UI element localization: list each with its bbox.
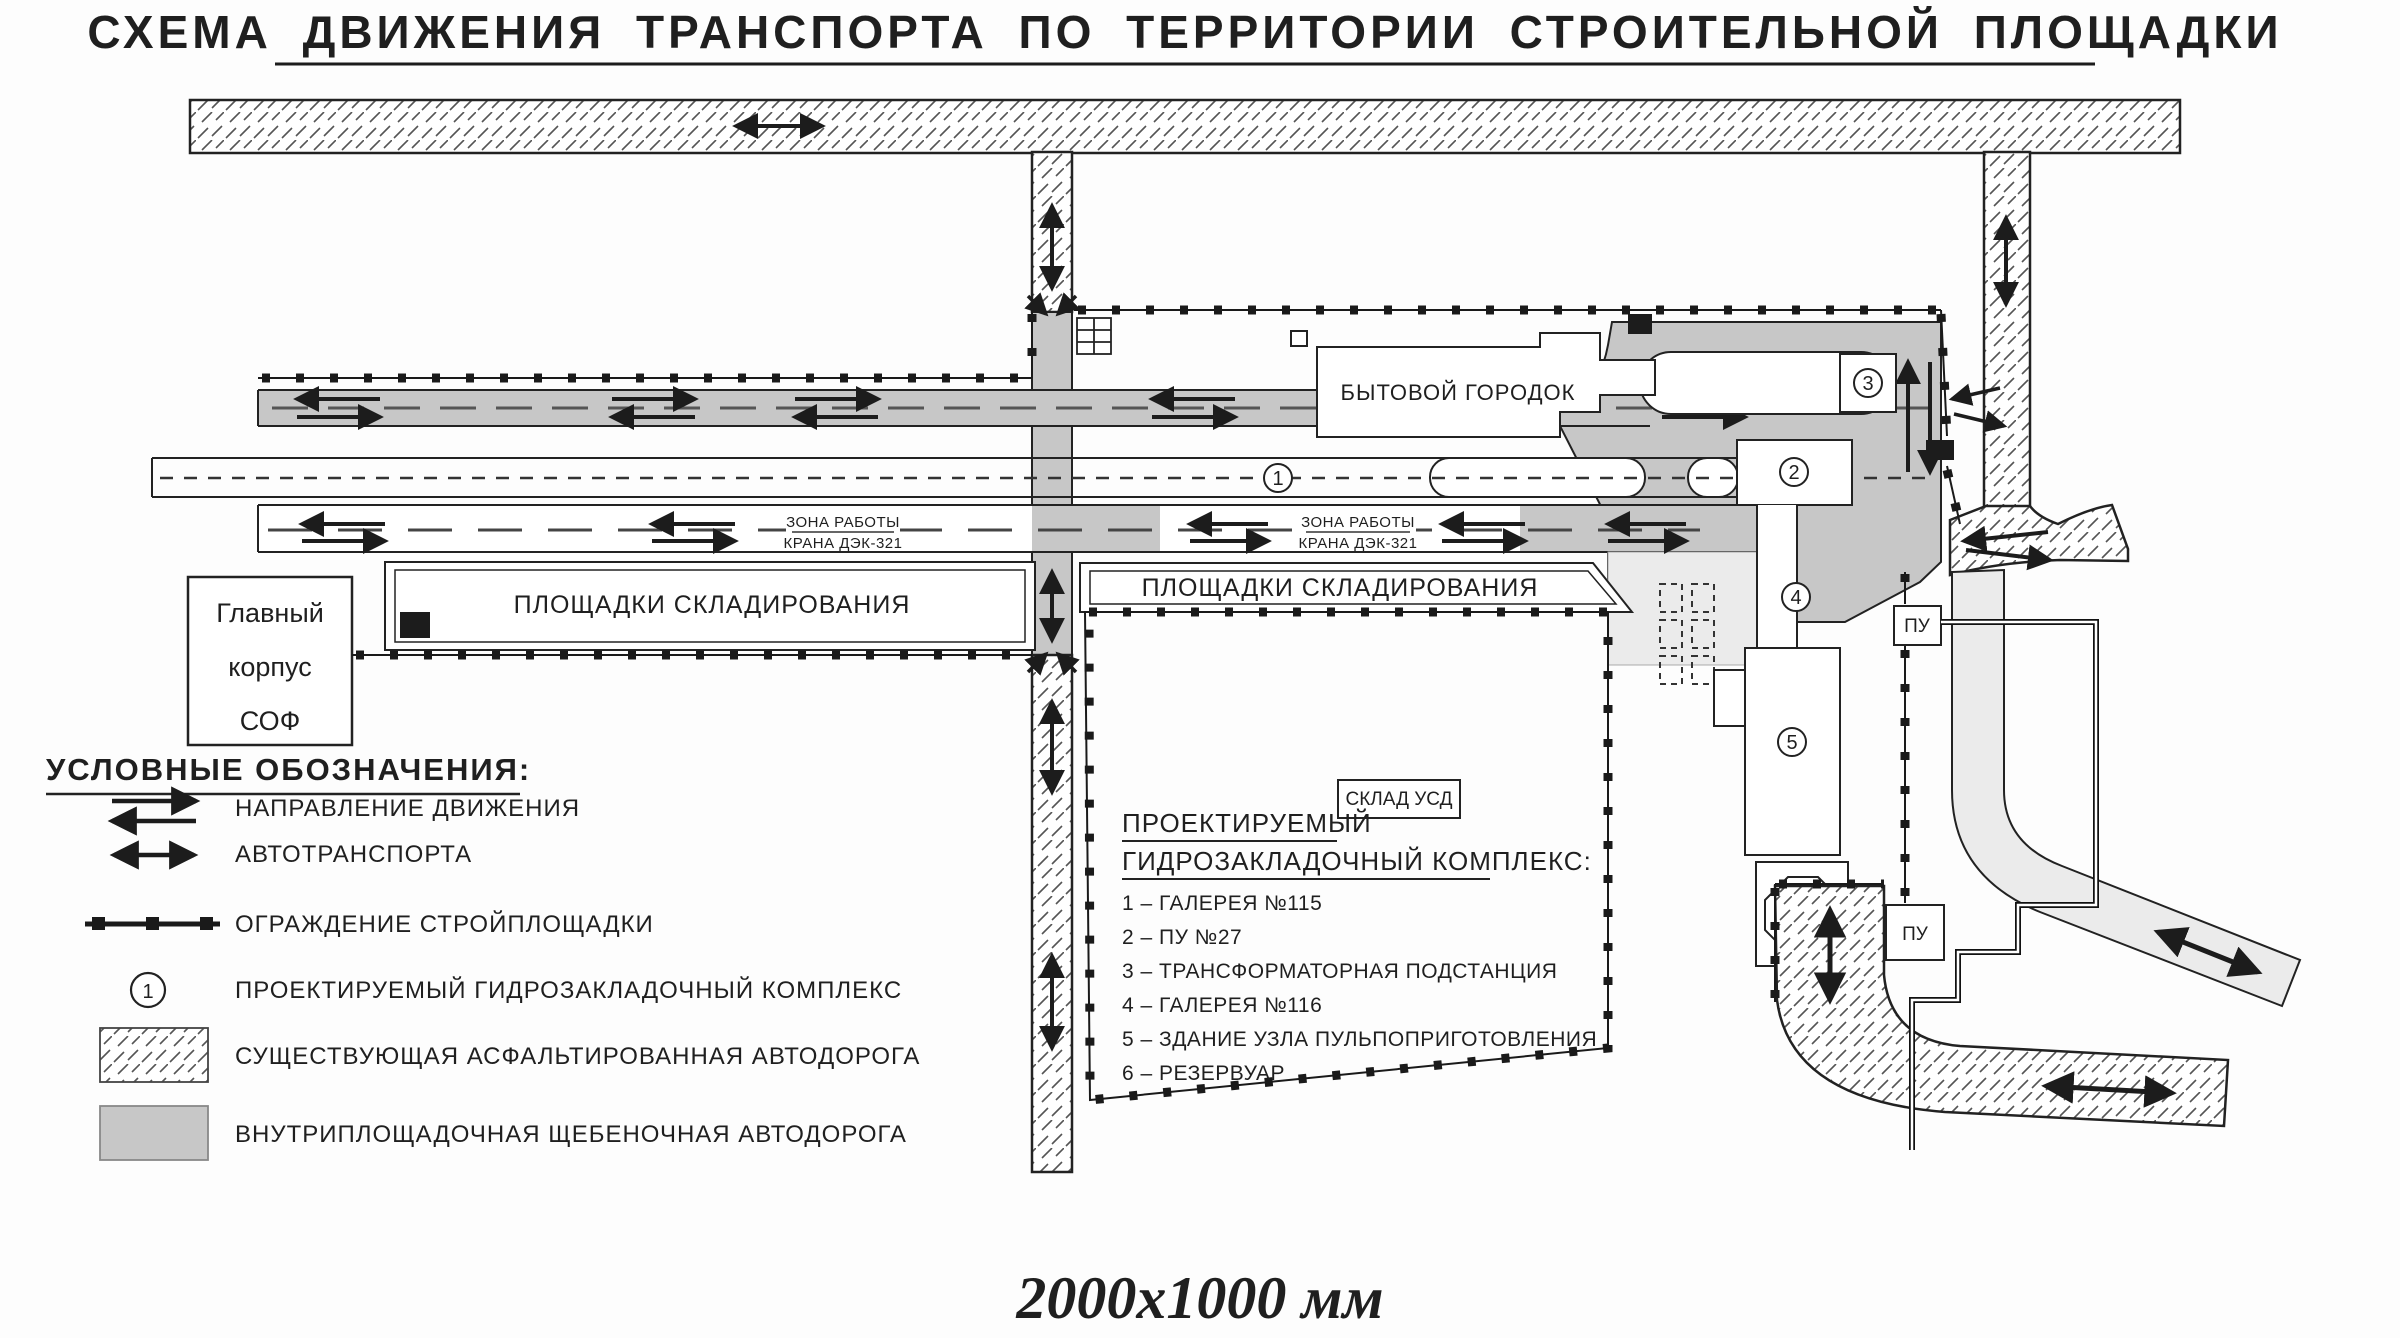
crane-zone-1-line2: КРАНА ДЭК-321 bbox=[784, 535, 903, 552]
sheet-size-caption: 2000x1000 мм bbox=[1015, 1265, 1383, 1331]
complex-item-2: 2 – ПУ №27 bbox=[1122, 926, 1242, 949]
asphalt-swatch bbox=[100, 1028, 208, 1082]
marker-4: 4 bbox=[1790, 587, 1801, 609]
crane-zone-2-line1: ЗОНА РАБОТЫ bbox=[1301, 514, 1415, 531]
legend-complex: ПРОЕКТИРУЕМЫЙ ГИДРОЗАКЛАДОЧНЫЙ КОМПЛЕКС bbox=[235, 976, 902, 1004]
storage-area-2-label: ПЛОЩАДКИ СКЛАДИРОВАНИЯ bbox=[1142, 574, 1539, 602]
asphalt-road-vertical-lower bbox=[1032, 655, 1072, 1172]
legend-direction-1: НАПРАВЛЕНИЕ ДВИЖЕНИЯ bbox=[235, 795, 580, 822]
gallery-115-marker: 1 bbox=[1264, 464, 1292, 492]
storage-area-1: ПЛОЩАДКИ СКЛАДИРОВАНИЯ bbox=[385, 562, 1035, 650]
transformer-island: 3 bbox=[1640, 352, 1896, 414]
camp-label: БЫТОВОЙ ГОРОДОК bbox=[1341, 380, 1576, 405]
small-structure bbox=[1291, 331, 1307, 346]
designed-complex-list: ПРОЕКТИРУЕМЫЙ ГИДРОЗАКЛАДОЧНЫЙ КОМПЛЕКС:… bbox=[1122, 808, 1597, 1085]
marker-5: 5 bbox=[1786, 732, 1797, 754]
complex-list-heading-1: ПРОЕКТИРУЕМЫЙ bbox=[1122, 808, 1372, 838]
legend-asphalt: СУЩЕСТВУЮЩАЯ АСФАЛЬТИРОВАННАЯ АВТОДОРОГА bbox=[235, 1043, 920, 1070]
crane-zone-1-line1: ЗОНА РАБОТЫ bbox=[786, 514, 900, 531]
pu-box-2: ПУ bbox=[1886, 905, 1944, 960]
complex-item-3: 3 – ТРАНСФОРМАТОРНАЯ ПОДСТАНЦИЯ bbox=[1122, 960, 1557, 983]
pu-box-2-label: ПУ bbox=[1902, 924, 1929, 945]
asphalt-road-vertical-central bbox=[1032, 152, 1072, 312]
complex-item-5: 5 – ЗДАНИЕ УЗЛА ПУЛЬПОПРИГОТОВЛЕНИЯ bbox=[1122, 1028, 1597, 1051]
legend-heading: УСЛОВНЫЕ ОБОЗНАЧЕНИЯ: bbox=[46, 752, 531, 787]
site-plan-page: ЗОНА РАБОТЫ КРАНА ДЭК-321 ЗОНА РАБОТЫ КР… bbox=[0, 0, 2400, 1338]
direction-arrows-icon bbox=[112, 801, 196, 855]
crane-zone-2-line2: КРАНА ДЭК-321 bbox=[1299, 535, 1418, 552]
light-exit-road bbox=[1952, 570, 2300, 1006]
main-building: Главный корпус СОФ bbox=[188, 577, 352, 745]
pu-box-1-label: ПУ bbox=[1904, 616, 1931, 637]
main-building-line3: СОФ bbox=[240, 706, 300, 736]
crane-zone-label-2: ЗОНА РАБОТЫ КРАНА ДЭК-321 bbox=[1299, 509, 1418, 552]
asphalt-road-top bbox=[190, 100, 2180, 153]
legend-gravel: ВНУТРИПЛОЩАДОЧНАЯ ЩЕБЕНОЧНАЯ АВТОДОРОГА bbox=[235, 1121, 907, 1148]
cabin-grid-icon bbox=[1077, 318, 1111, 354]
main-building-line1: Главный bbox=[216, 598, 324, 628]
marker-1: 1 bbox=[1272, 468, 1283, 490]
fence-icon bbox=[85, 917, 220, 930]
complex-item-4: 4 – ГАЛЕРЕЯ №116 bbox=[1122, 994, 1322, 1017]
pu-box-1: ПУ bbox=[1894, 606, 1941, 645]
complex-list-heading-2: ГИДРОЗАКЛАДОЧНЫЙ КОМПЛЕКС: bbox=[1122, 846, 1592, 876]
drawing-title: СХЕМА ДВИЖЕНИЯ ТРАНСПОРТА ПО ТЕРРИТОРИИ … bbox=[87, 6, 2282, 64]
asphalt-road-vertical-right bbox=[1950, 152, 2128, 575]
complex-marker-icon: 1 bbox=[131, 973, 165, 1007]
storage-area-1-label: ПЛОЩАДКИ СКЛАДИРОВАНИЯ bbox=[514, 591, 911, 619]
light-yard-area bbox=[1608, 552, 1757, 684]
crane-zone-label-1: ЗОНА РАБОТЫ КРАНА ДЭК-321 bbox=[784, 509, 903, 552]
legend: УСЛОВНЫЕ ОБОЗНАЧЕНИЯ: НАПРАВЛЕНИЕ ДВИЖЕН… bbox=[46, 752, 920, 1160]
gravel-swatch bbox=[100, 1106, 208, 1160]
gate-mark bbox=[400, 612, 430, 638]
legend-fence: ОГРАЖДЕНИЕ СТРОЙПЛОЩАДКИ bbox=[235, 910, 654, 938]
gallery-line-corridor bbox=[152, 458, 1740, 497]
legend-sample-marker: 1 bbox=[142, 981, 153, 1003]
legend-direction-2: АВТОТРАНСПОРТА bbox=[235, 841, 472, 868]
storage-area-2: ПЛОЩАДКИ СКЛАДИРОВАНИЯ bbox=[1080, 563, 1632, 612]
pulp-plant-building: 5 bbox=[1714, 648, 1840, 855]
main-building-line2: корпус bbox=[228, 652, 311, 682]
title-text: СХЕМА ДВИЖЕНИЯ ТРАНСПОРТА ПО ТЕРРИТОРИИ … bbox=[87, 6, 2282, 58]
site-plan-drawing: ЗОНА РАБОТЫ КРАНА ДЭК-321 ЗОНА РАБОТЫ КР… bbox=[0, 0, 2400, 1338]
usd-warehouse-label: СКЛАД УСД bbox=[1346, 789, 1453, 810]
marker-3: 3 bbox=[1862, 373, 1873, 395]
complex-item-1: 1 – ГАЛЕРЕЯ №115 bbox=[1122, 892, 1322, 915]
pu27-building: 2 bbox=[1737, 440, 1852, 505]
complex-item-6: 6 – РЕЗЕРВУАР bbox=[1122, 1062, 1285, 1085]
marker-2: 2 bbox=[1788, 462, 1799, 484]
